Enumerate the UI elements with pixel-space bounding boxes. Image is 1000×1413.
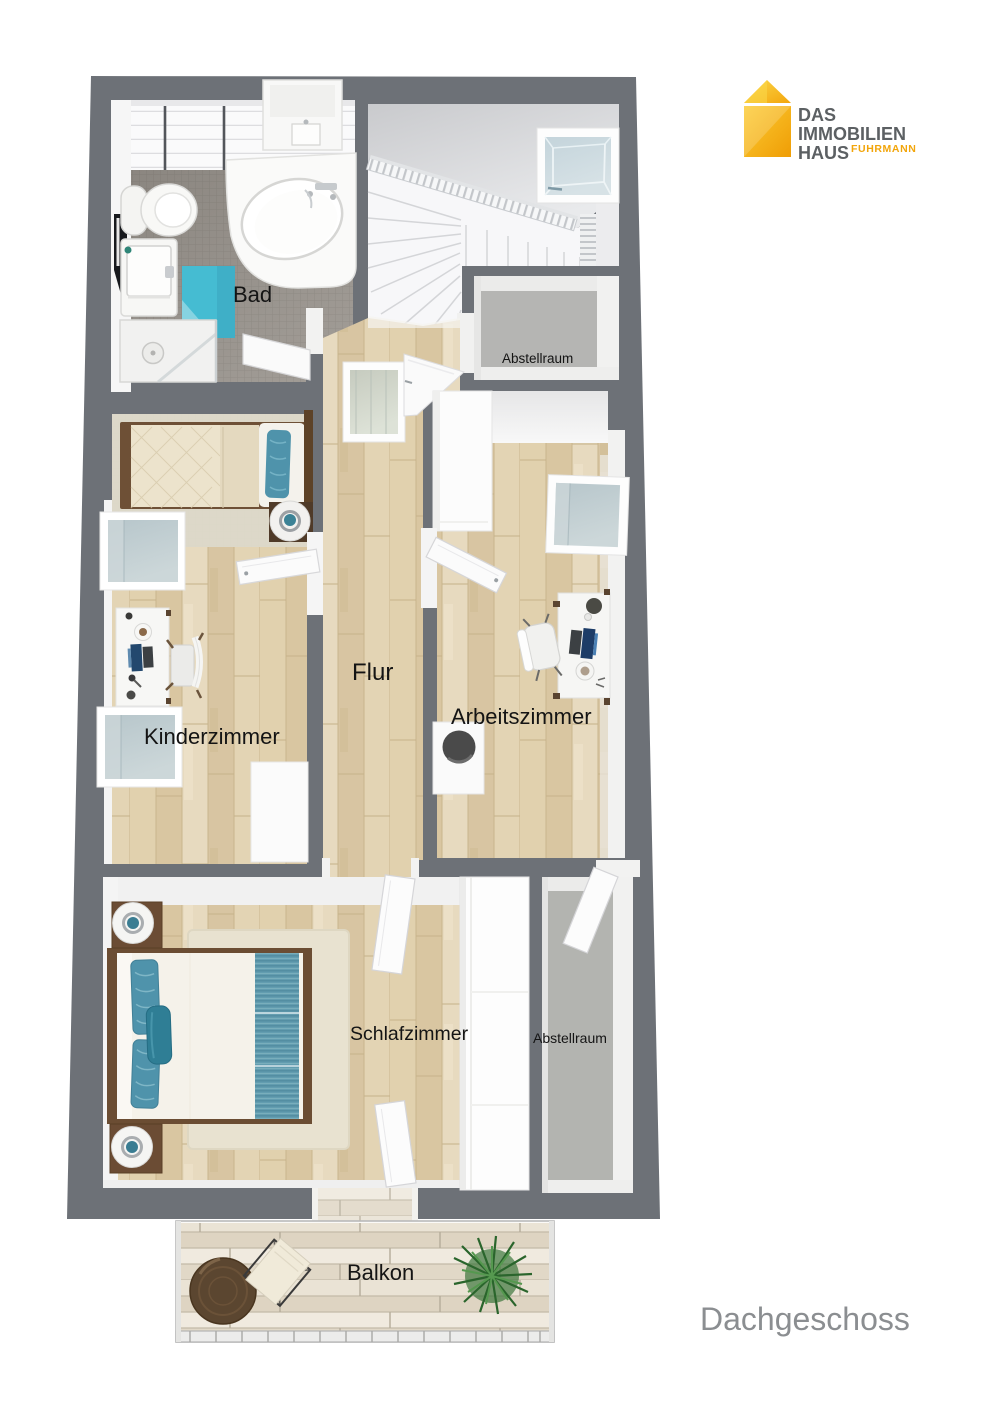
- svg-text:DAS: DAS: [798, 105, 836, 125]
- svg-text:Abstellraum: Abstellraum: [502, 351, 573, 366]
- svg-text:Bad: Bad: [233, 282, 272, 307]
- svg-text:Balkon: Balkon: [347, 1260, 414, 1285]
- svg-text:Dachgeschoss: Dachgeschoss: [700, 1301, 910, 1337]
- svg-text:Kinderzimmer: Kinderzimmer: [144, 724, 280, 749]
- svg-text:Flur: Flur: [352, 659, 393, 686]
- svg-text:IMMOBILIEN: IMMOBILIEN: [798, 124, 906, 144]
- svg-text:FUHRMANN: FUHRMANN: [851, 143, 916, 155]
- svg-text:Schlafzimmer: Schlafzimmer: [350, 1023, 469, 1045]
- svg-text:HAUS: HAUS: [798, 143, 849, 163]
- svg-text:Arbeitszimmer: Arbeitszimmer: [451, 704, 592, 729]
- svg-text:Abstellraum: Abstellraum: [533, 1030, 607, 1046]
